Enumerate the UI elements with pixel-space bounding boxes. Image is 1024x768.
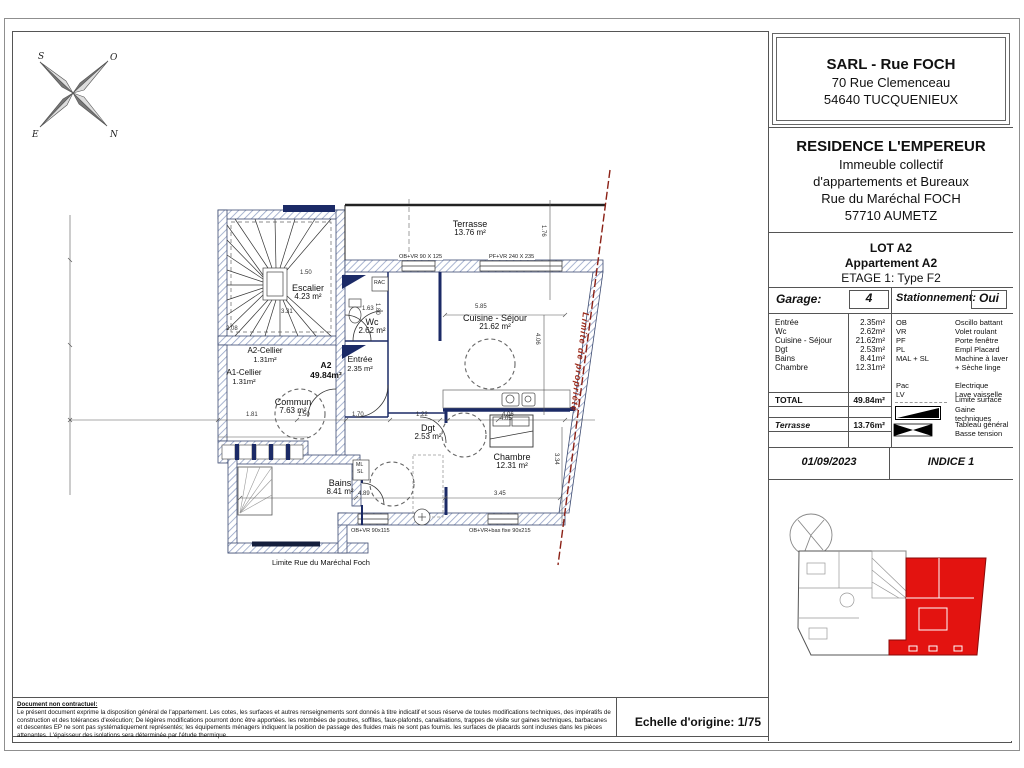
plan-drawing xyxy=(50,165,770,595)
company-name: SARL - Rue FOCH xyxy=(777,56,1005,73)
gaines-strip xyxy=(222,444,303,460)
disclaimer-title: Document non contractuel: xyxy=(17,701,611,709)
key-building-white xyxy=(798,551,906,655)
room-label-dgt: Dgt2.53 m² xyxy=(414,423,441,442)
stair-top-bar xyxy=(283,205,335,212)
compass-letter-s: S xyxy=(38,52,44,62)
dim-2-08: 2.08 xyxy=(226,326,238,332)
dim-1-80: 1.80 xyxy=(374,303,380,315)
placard-dashed xyxy=(413,455,443,517)
window-label-3: OB+VR 90x115 xyxy=(350,528,391,534)
room-label-cuisine: Cuisine - Séjour21.62 m² xyxy=(463,313,527,332)
kitchen-counter xyxy=(443,390,570,410)
gaine-techniques-symbol xyxy=(895,406,941,420)
compass-letter-n: N xyxy=(109,130,119,140)
duct-wedge-1 xyxy=(342,275,366,289)
company-address2: 54640 TUCQUENIEUX xyxy=(777,92,1005,107)
tableau-general-symbol xyxy=(893,423,933,437)
disclaimer: Document non contractuel: Le présent doc… xyxy=(17,701,611,740)
terrasse-row: Terrasse 13.76m² xyxy=(769,417,891,432)
plan-sheet: S O E N xyxy=(0,0,1024,768)
garage-value: 4 xyxy=(849,290,889,309)
dim-3-45: 3.45 xyxy=(494,491,506,497)
total-row: TOTAL 49.84m² xyxy=(769,392,891,407)
lot-box: LOT A2 Appartement A2 ETAGE 1: Type F2 xyxy=(769,233,1013,285)
window-label-2: PF+VR 240 X 235 xyxy=(488,254,535,260)
dim-1-22: 1.22 xyxy=(416,412,428,418)
sl-label: SL xyxy=(357,469,363,475)
lot-apartment: Appartement A2 xyxy=(769,256,1013,270)
dim-1-50-a: 1.50 xyxy=(298,412,310,418)
dim-3-34: 3.34 xyxy=(553,453,559,465)
floor-fixture xyxy=(414,509,430,525)
garage-label: Garage: xyxy=(776,292,821,306)
compass-letter-o: O xyxy=(110,53,118,63)
floor-plan: Terrasse13.76 m² Escalier4.23 m² Wc2.62 … xyxy=(50,165,770,595)
staircase xyxy=(227,219,331,336)
window-label-1: OB+VR 90 X 125 xyxy=(398,254,443,260)
bottom-strip: Document non contractuel: Le présent doc… xyxy=(12,697,768,737)
room-label-bains: Bains8.41 m² xyxy=(326,478,353,497)
stationnement-label: Stationnement: xyxy=(896,292,976,304)
project-name: RESIDENCE L'EMPEREUR xyxy=(769,138,1013,155)
dim-1-81: 1.81 xyxy=(246,412,258,418)
room-label-a1-cellier: A1-Cellier1.31m² xyxy=(226,369,261,386)
project-box: RESIDENCE L'EMPEREUR Immeuble collectif … xyxy=(769,128,1013,223)
shower xyxy=(238,467,272,515)
dim-1-76: 1.76 xyxy=(540,225,546,237)
dim-4-05: 4.05 xyxy=(500,416,512,422)
room-label-a2-cellier: A2-Cellier1.31m² xyxy=(247,347,282,364)
indice-value: INDICE 1 xyxy=(889,456,1013,468)
lot-floor-type: ETAGE 1: Type F2 xyxy=(769,271,1013,285)
compass-rose-icon: S O E N xyxy=(18,35,128,145)
unit-label-a2: A249.84m² xyxy=(310,361,342,380)
room-label-entree: Entrée2.35 m² xyxy=(347,355,372,373)
ml-label: ML xyxy=(356,462,363,468)
dim-4-06-v: 4.06 xyxy=(534,333,540,345)
company-address1: 70 Rue Clemenceau xyxy=(777,75,1005,90)
stationnement-value: Oui xyxy=(971,290,1007,309)
rac-label: RAC xyxy=(374,280,385,286)
compass-letter-e: E xyxy=(31,130,39,140)
dim-4-89: 4.89 xyxy=(358,491,370,497)
limite-surface-symbol xyxy=(895,402,947,403)
tableau-general-label-2: Basse tension xyxy=(955,429,1002,438)
room-label-chambre: Chambre12.31 m² xyxy=(493,452,530,471)
key-plan xyxy=(769,478,1013,741)
room-label-wc: Wc2.62 m² xyxy=(358,317,385,336)
dim-5-85: 5.85 xyxy=(475,304,487,310)
north-symbol-icon xyxy=(790,514,832,556)
window-label-4: OB+VR+bas fixe 90x215 xyxy=(468,528,532,534)
street-limit-label: Limite Rue du Maréchal Foch xyxy=(272,558,370,567)
date-value: 01/09/2023 xyxy=(769,456,889,468)
company-box: SARL - Rue FOCH 70 Rue Clemenceau 54640 … xyxy=(772,33,1010,125)
tableau-general-label-1: Tableau général xyxy=(955,420,1008,429)
dim-1-50-b: 1.50 xyxy=(300,270,312,276)
dim-1-70: 1.70 xyxy=(352,412,364,418)
room-label-terrasse: Terrasse13.76 m² xyxy=(453,219,488,238)
scale-label: Echelle d'origine: 1/75 xyxy=(630,715,766,729)
limite-surface-label: Limite surface xyxy=(955,395,1002,404)
room-label-escalier: Escalier4.23 m² xyxy=(292,283,324,302)
dim-1-63: 1.63 xyxy=(362,306,374,312)
lot-number: LOT A2 xyxy=(769,241,1013,255)
dim-3-31: 3.31 xyxy=(281,309,293,315)
date-row: 01/09/2023 INDICE 1 xyxy=(769,447,1013,480)
title-block: SARL - Rue FOCH 70 Rue Clemenceau 54640 … xyxy=(768,31,1013,741)
